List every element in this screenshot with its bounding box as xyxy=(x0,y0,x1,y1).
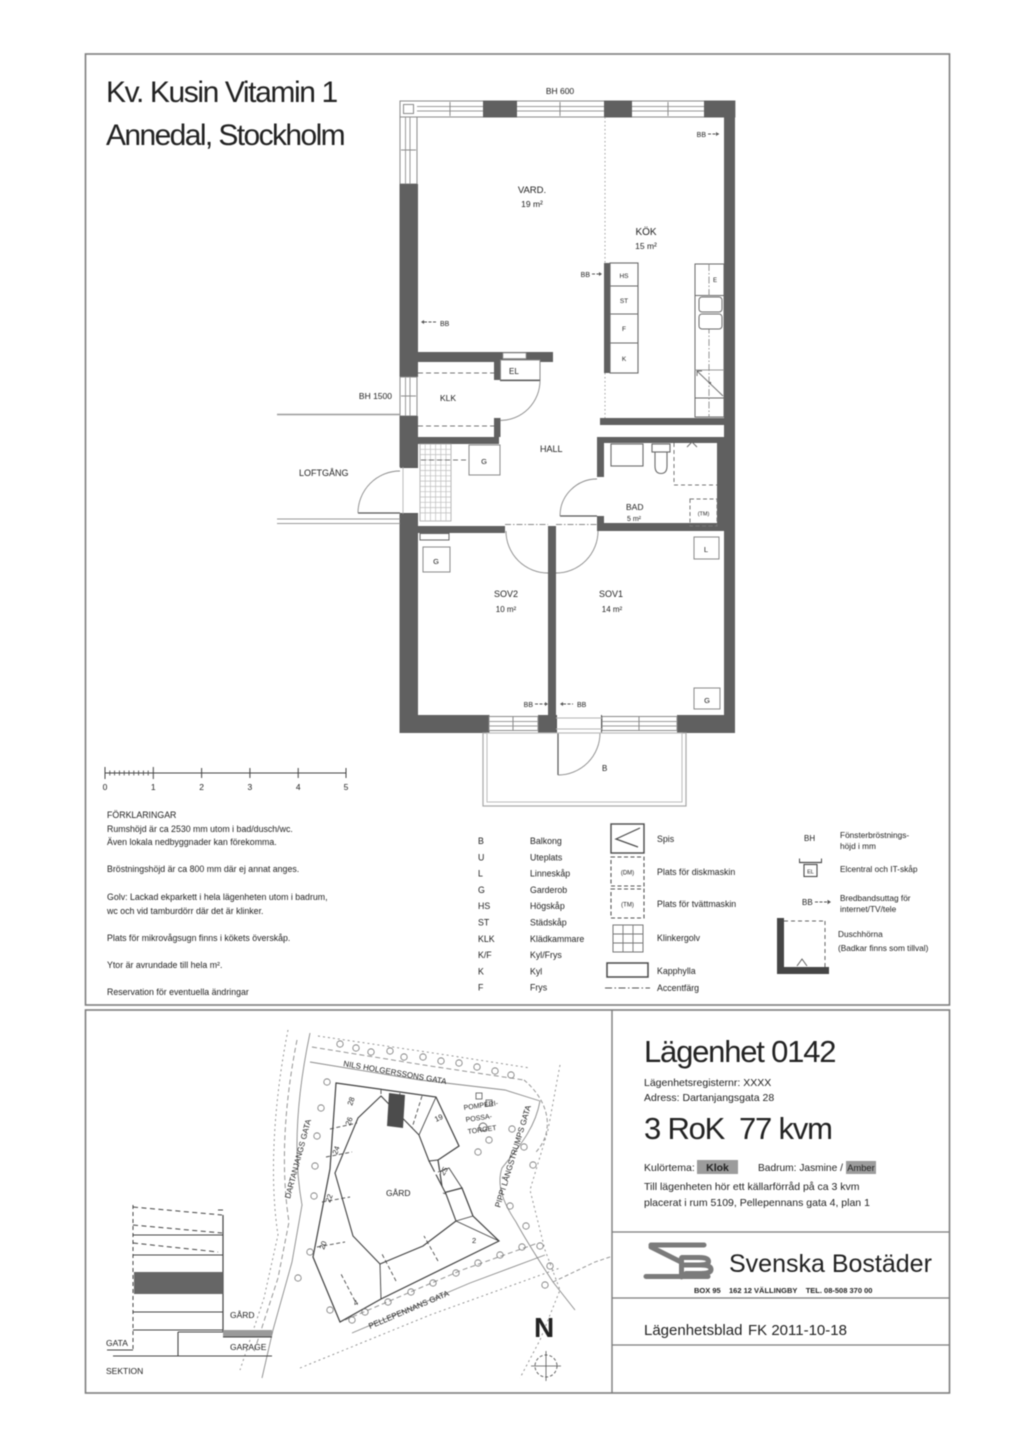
svg-text:E: E xyxy=(713,278,717,284)
svg-text:HS: HS xyxy=(619,273,629,280)
svg-text:SOV1: SOV1 xyxy=(599,589,623,599)
svg-text:EL: EL xyxy=(807,870,814,876)
svg-text:Klädkammare: Klädkammare xyxy=(530,934,584,944)
svg-text:L: L xyxy=(478,869,483,879)
svg-text:BB: BB xyxy=(577,702,587,709)
svg-text:(TM): (TM) xyxy=(698,512,710,518)
svg-text:placerat i rum 5109, Pellepenn: placerat i rum 5109, Pellepennans gata 4… xyxy=(644,1197,870,1209)
svg-text:B: B xyxy=(478,836,484,846)
svg-text:(DM): (DM) xyxy=(621,871,634,877)
svg-text:Elcentral och IT-skåp: Elcentral och IT-skåp xyxy=(840,864,918,874)
svg-text:Kapphylla: Kapphylla xyxy=(657,966,696,976)
svg-text:Kulörtema:: Kulörtema: xyxy=(644,1162,695,1174)
svg-text:(TM): (TM) xyxy=(621,903,634,909)
svg-text:5 m²: 5 m² xyxy=(627,516,642,523)
svg-text:K: K xyxy=(622,356,627,363)
svg-text:Amber: Amber xyxy=(847,1163,874,1173)
svg-text:Klok: Klok xyxy=(706,1162,729,1174)
svg-text:GÅRD: GÅRD xyxy=(230,1310,255,1320)
svg-text:Plats för tvättmaskin: Plats för tvättmaskin xyxy=(657,899,736,909)
svg-text:Duschhörna: Duschhörna xyxy=(838,929,883,939)
svg-text:BB: BB xyxy=(802,898,813,907)
svg-text:SEKTION: SEKTION xyxy=(106,1366,143,1376)
svg-text:19 m²: 19 m² xyxy=(521,199,543,209)
svg-text:KLK: KLK xyxy=(478,934,495,944)
svg-text:Kv. Kusin Vitamin 1: Kv. Kusin Vitamin 1 xyxy=(106,76,337,109)
svg-text:10 m²: 10 m² xyxy=(496,605,517,614)
svg-text:Frys: Frys xyxy=(530,983,548,993)
svg-text:BB: BB xyxy=(581,272,591,279)
svg-text:Kyl: Kyl xyxy=(530,966,542,976)
svg-text:14 m²: 14 m² xyxy=(602,605,623,614)
svg-text:DARTANJANGS GATA: DARTANJANGS GATA xyxy=(283,1118,313,1200)
svg-text:Lägenhetsregisternr: XXXX: Lägenhetsregisternr: XXXX xyxy=(644,1077,771,1089)
svg-text:Lägenhet 0142: Lägenhet 0142 xyxy=(644,1034,835,1069)
svg-text:Accentfärg: Accentfärg xyxy=(657,983,699,993)
svg-text:Plats för mikrovågsugn finns i: Plats för mikrovågsugn finns i kökets öv… xyxy=(107,933,290,943)
svg-text:Adress: Dartanjangsgata 28: Adress: Dartanjangsgata 28 xyxy=(644,1092,774,1104)
svg-text:internet/TV/tele: internet/TV/tele xyxy=(840,904,897,914)
svg-text:N: N xyxy=(534,1312,554,1343)
svg-text:Till lägenheten hör ett källar: Till lägenheten hör ett källarförråd på … xyxy=(644,1181,860,1193)
svg-text:BB: BB xyxy=(524,702,534,709)
svg-text:4: 4 xyxy=(296,782,301,792)
svg-text:Fönsterbröstnings-: Fönsterbröstnings- xyxy=(840,830,909,840)
svg-text:GARAGE: GARAGE xyxy=(230,1342,267,1352)
svg-text:NILS HOLGERSSONS GATA: NILS HOLGERSSONS GATA xyxy=(343,1059,448,1086)
svg-text:K/F: K/F xyxy=(478,950,492,960)
svg-text:BAD: BAD xyxy=(626,502,643,512)
svg-text:SOV2: SOV2 xyxy=(494,589,518,599)
svg-text:Bröstningshöjd är ca 800 mm dä: Bröstningshöjd är ca 800 mm där ej annat… xyxy=(107,864,299,874)
svg-text:POMPERI-: POMPERI- xyxy=(463,1100,499,1112)
svg-text:F: F xyxy=(478,983,484,993)
svg-text:POSSA-: POSSA- xyxy=(465,1113,493,1124)
svg-text:ST: ST xyxy=(478,918,490,928)
svg-text:FÖRKLARINGAR: FÖRKLARINGAR xyxy=(107,810,176,820)
svg-text:15 m²: 15 m² xyxy=(635,241,657,251)
svg-text:5: 5 xyxy=(344,782,349,792)
svg-text:Rumshöjd är ca 2530 mm utom i: Rumshöjd är ca 2530 mm utom i bad/dusch/… xyxy=(107,824,293,834)
svg-text:Golv: Lackad ekparkett i hela: Golv: Lackad ekparkett i hela lägenheten… xyxy=(107,892,328,902)
svg-text:Även lokala nedbyggnader kan f: Även lokala nedbyggnader kan förekomma. xyxy=(107,837,277,847)
svg-text:höjd i mm: höjd i mm xyxy=(840,841,876,851)
svg-text:G: G xyxy=(704,696,710,705)
svg-text:FK 2011-10-18: FK 2011-10-18 xyxy=(748,1322,847,1339)
svg-text:GÅRD: GÅRD xyxy=(386,1188,411,1198)
svg-text:BH: BH xyxy=(804,834,815,843)
svg-text:3: 3 xyxy=(248,782,253,792)
svg-text:Uteplats: Uteplats xyxy=(530,852,563,862)
svg-text:3 RoK 77 kvm: 3 RoK 77 kvm xyxy=(644,1111,832,1146)
svg-text:TORGET: TORGET xyxy=(467,1125,497,1136)
svg-text:Ytor är avrundade till hela m²: Ytor är avrundade till hela m². xyxy=(107,960,222,970)
svg-text:Spis: Spis xyxy=(657,834,675,844)
svg-text:Plats för diskmaskin: Plats för diskmaskin xyxy=(657,867,735,877)
svg-text:2: 2 xyxy=(199,782,204,792)
svg-text:2: 2 xyxy=(472,1236,476,1245)
svg-text:BOX 95 162 12 VÄLLINGBY: BOX 95 162 12 VÄLLINGBY TEL. 08-508 370 … xyxy=(694,1286,872,1295)
svg-text:wc och vid tamburdörr där det: wc och vid tamburdörr där det är klinker… xyxy=(106,906,263,916)
svg-text:Högskåp: Högskåp xyxy=(530,901,565,911)
svg-text:BH 600: BH 600 xyxy=(546,86,575,96)
svg-text:LOFTGÅNG: LOFTGÅNG xyxy=(299,468,349,478)
svg-text:F: F xyxy=(622,326,626,333)
svg-text:Bredbandsuttag för: Bredbandsuttag för xyxy=(840,893,911,903)
svg-text:Linneskåp: Linneskåp xyxy=(530,869,570,879)
svg-text:Lägenhetsblad: Lägenhetsblad xyxy=(644,1322,742,1339)
svg-text:U: U xyxy=(478,852,484,862)
svg-text:KÖK: KÖK xyxy=(635,226,656,238)
svg-text:Reservation för eventuella änd: Reservation för eventuella ändringar xyxy=(107,987,249,997)
svg-text:Balkong: Balkong xyxy=(530,836,562,846)
svg-text:BH 1500: BH 1500 xyxy=(359,391,392,401)
svg-text:VARD.: VARD. xyxy=(518,185,546,196)
svg-text:L: L xyxy=(704,545,708,554)
svg-text:1: 1 xyxy=(151,782,156,792)
svg-text:BB: BB xyxy=(440,321,450,328)
svg-text:HALL: HALL xyxy=(540,444,563,454)
svg-text:K: K xyxy=(478,966,484,976)
svg-text:Klinkergolv: Klinkergolv xyxy=(657,933,701,943)
svg-text:Svenska Bostäder: Svenska Bostäder xyxy=(729,1250,932,1278)
svg-text:HS: HS xyxy=(478,901,490,911)
svg-text:G: G xyxy=(478,885,485,895)
svg-text:ST: ST xyxy=(620,298,628,305)
svg-text:(Badkar finns som tillval): (Badkar finns som tillval) xyxy=(838,943,929,953)
svg-text:B: B xyxy=(602,764,607,773)
svg-text:G: G xyxy=(433,557,439,566)
svg-text:Badrum: Jasmine /: Badrum: Jasmine / xyxy=(758,1163,843,1174)
svg-text:KLK: KLK xyxy=(440,393,456,403)
svg-text:0: 0 xyxy=(103,782,108,792)
svg-text:Garderob: Garderob xyxy=(530,885,567,895)
svg-text:Annedal, Stockholm: Annedal, Stockholm xyxy=(106,119,345,152)
svg-text:BB: BB xyxy=(697,132,707,139)
svg-text:PIPPI LÅNGSTRUMPS GATA: PIPPI LÅNGSTRUMPS GATA xyxy=(493,1104,533,1209)
svg-text:EL: EL xyxy=(509,367,519,376)
svg-text:Kyl/Frys: Kyl/Frys xyxy=(530,950,562,960)
svg-text:G: G xyxy=(481,457,487,466)
svg-text:Städskåp: Städskåp xyxy=(530,918,567,928)
svg-text:GATA: GATA xyxy=(106,1338,128,1348)
